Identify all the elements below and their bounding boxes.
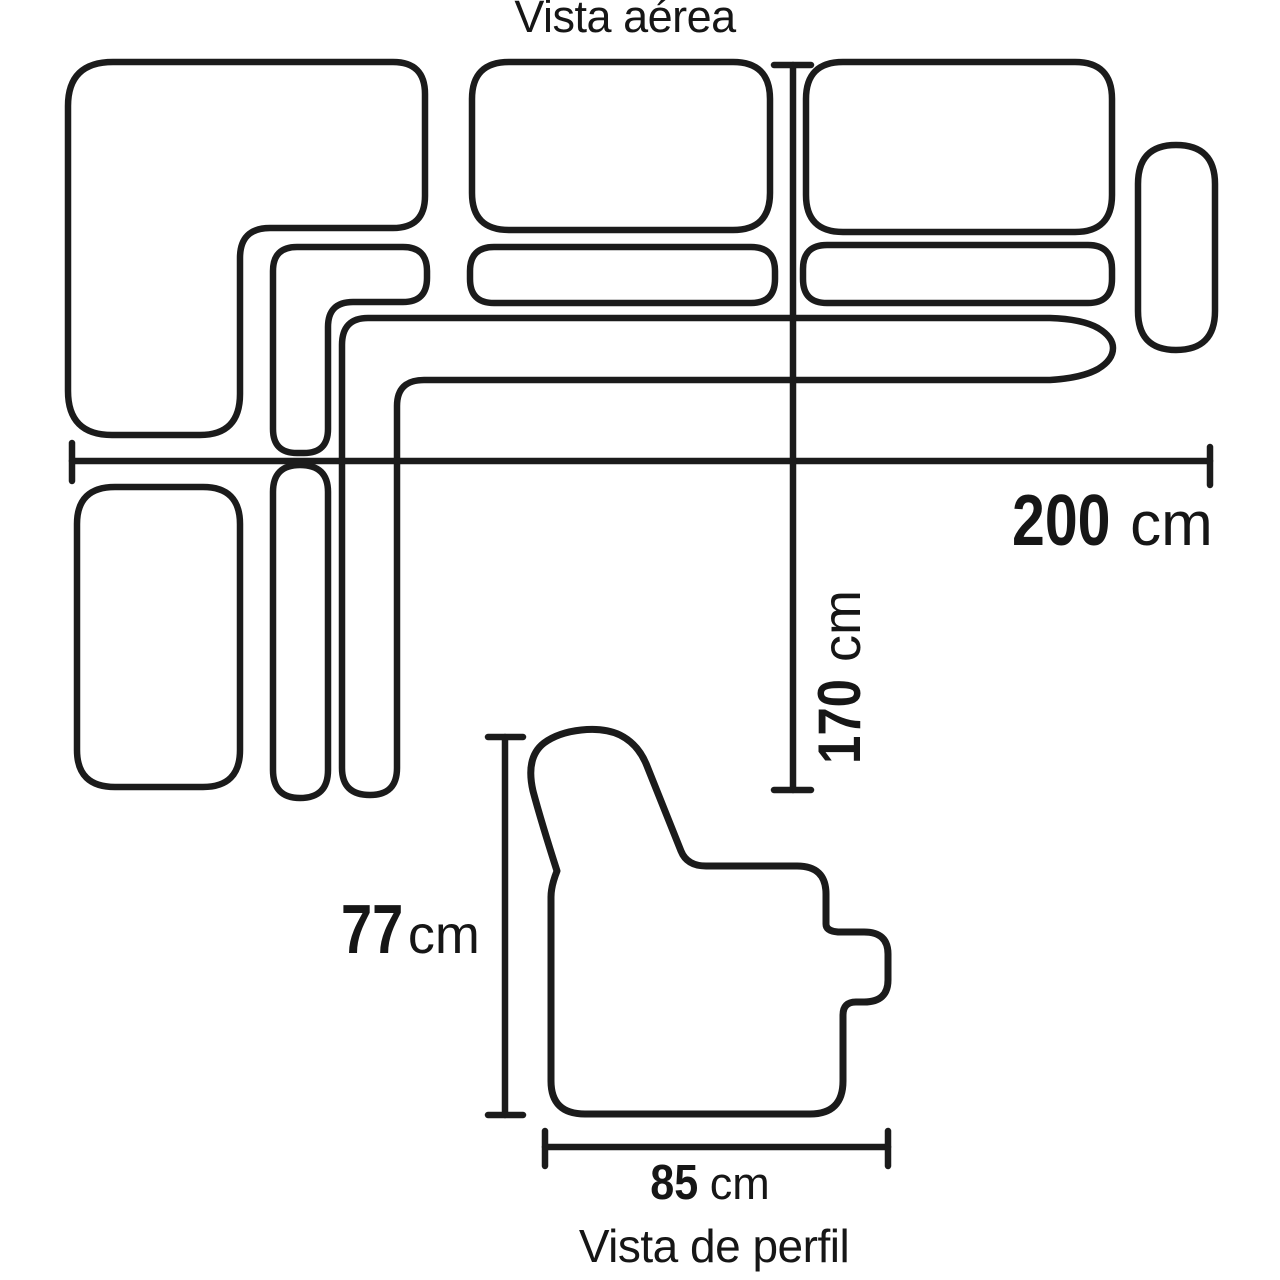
height-dimension-label: 77 cm bbox=[341, 896, 480, 968]
seat-depth-dimension-value: 85 bbox=[650, 1160, 698, 1206]
chaise-narrow-pad bbox=[273, 465, 328, 798]
depth-dimension-value: 170 bbox=[812, 679, 868, 764]
center-seat-pad bbox=[470, 247, 775, 303]
height-dimension-value: 77 bbox=[341, 896, 403, 962]
line-art bbox=[0, 0, 1280, 1280]
seat-depth-dimension-label: 85 cm bbox=[650, 1160, 770, 1207]
right-back-cushion bbox=[806, 62, 1112, 232]
aerial-view-title: Vista aérea bbox=[514, 0, 735, 42]
profile-view-title: Vista de perfil bbox=[579, 1220, 849, 1272]
width-dimension-value: 200 bbox=[1012, 488, 1111, 554]
height-dimension-line bbox=[488, 737, 523, 1115]
width-dimension-label: 200 cm bbox=[1012, 488, 1213, 558]
width-dimension-line bbox=[72, 443, 1210, 485]
center-back-cushion bbox=[472, 62, 770, 230]
width-dimension-unit: cm bbox=[1130, 492, 1213, 558]
sofa-dimensions-diagram: Vista aérea 200 cm 170 cm 77 cm 85 cm Vi… bbox=[0, 0, 1280, 1280]
seat-depth-dimension-unit: cm bbox=[710, 1161, 770, 1207]
chaise-seat-outline bbox=[342, 318, 1113, 795]
depth-dimension-unit: cm bbox=[814, 590, 870, 662]
right-seat-pad bbox=[803, 245, 1112, 303]
depth-dimension-label: 170 cm bbox=[812, 590, 870, 764]
corner-seat-cushion bbox=[273, 247, 427, 453]
armrest-bolster bbox=[1138, 145, 1215, 350]
chaise-end-seat bbox=[77, 487, 240, 787]
profile-outline bbox=[531, 729, 888, 1114]
height-dimension-unit: cm bbox=[408, 902, 480, 968]
